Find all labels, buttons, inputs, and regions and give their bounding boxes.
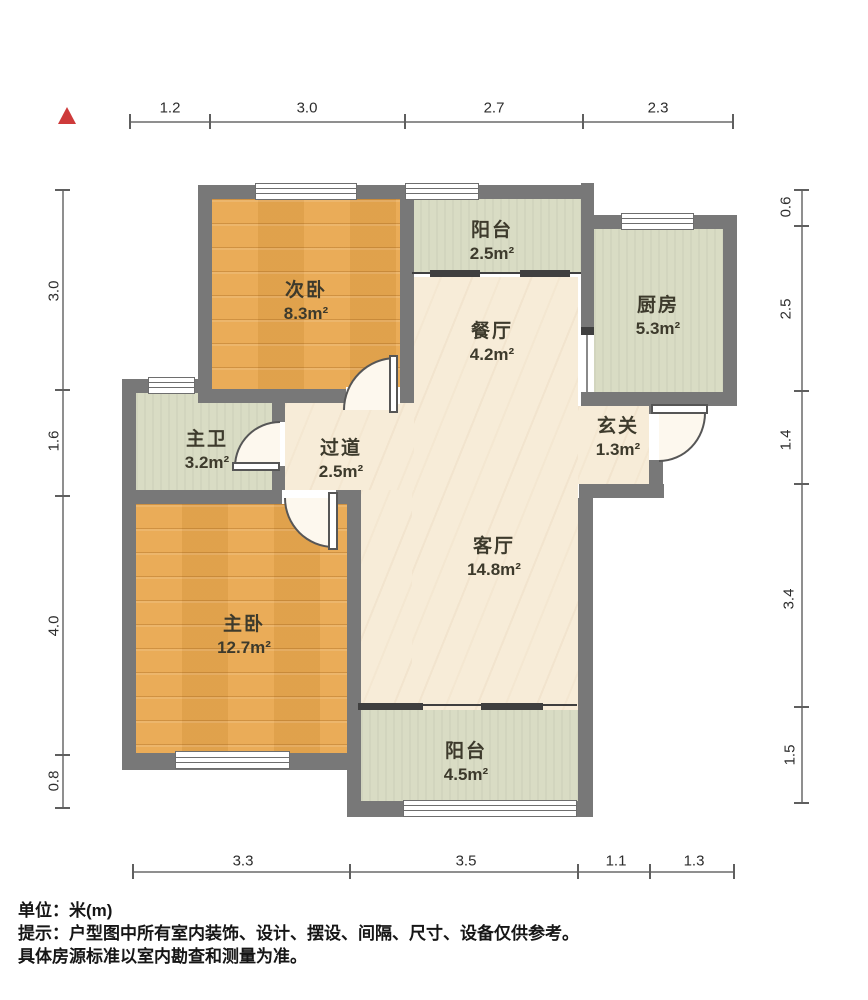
window bbox=[403, 800, 577, 817]
dim-label: 1.2 bbox=[160, 100, 181, 117]
room-name: 餐厅 bbox=[470, 316, 514, 343]
room-area: 3.2m² bbox=[185, 453, 229, 473]
dimension-line-bottom bbox=[133, 871, 735, 873]
dim-tick bbox=[794, 225, 809, 227]
room-living-floor-west bbox=[361, 490, 412, 710]
room-area: 2.5m² bbox=[470, 244, 514, 264]
dim-label: 0.6 bbox=[778, 197, 795, 218]
room-label-kitchen: 厨房 5.3m² bbox=[636, 290, 680, 339]
room-name: 客厅 bbox=[467, 531, 521, 558]
dim-tick bbox=[582, 114, 584, 129]
wall bbox=[723, 215, 737, 406]
wall bbox=[272, 392, 285, 422]
dim-label: 4.0 bbox=[46, 616, 63, 637]
window bbox=[621, 213, 694, 230]
dim-tick bbox=[55, 754, 70, 756]
floor-plan-canvas: 次卧 8.3m² 阳台 2.5m² 厨房 5.3m² 餐厅 4.2m² 主卫 3… bbox=[0, 0, 868, 1000]
room-label-bedroom-second: 次卧 8.3m² bbox=[284, 275, 328, 324]
door-leaf bbox=[232, 462, 280, 471]
footer-notes: 单位：米(m) 提示：户型图中所有室内装饰、设计、摆设、间隔、尺寸、设备仅供参考… bbox=[18, 899, 579, 968]
north-arrow-icon bbox=[58, 107, 76, 124]
dim-tick bbox=[132, 864, 134, 879]
room-name: 阳台 bbox=[470, 215, 514, 242]
door-arc bbox=[659, 413, 706, 462]
door-leaf bbox=[651, 404, 708, 414]
room-name: 主卫 bbox=[185, 424, 229, 451]
dim-label: 0.8 bbox=[46, 771, 63, 792]
dim-label: 3.0 bbox=[297, 100, 318, 117]
dim-tick bbox=[55, 389, 70, 391]
room-name: 过道 bbox=[319, 433, 363, 460]
dimension-line-right bbox=[801, 190, 803, 804]
room-area: 1.3m² bbox=[596, 440, 640, 460]
door-leaf bbox=[389, 355, 398, 413]
sliding-door-panel bbox=[520, 270, 570, 277]
dim-tick bbox=[55, 189, 70, 191]
room-label-balcony-north: 阳台 2.5m² bbox=[470, 215, 514, 264]
room-label-living: 客厅 14.8m² bbox=[467, 531, 521, 580]
wall bbox=[578, 498, 593, 817]
dim-tick bbox=[794, 802, 809, 804]
room-area: 2.5m² bbox=[319, 462, 363, 482]
room-area: 5.3m² bbox=[636, 319, 680, 339]
room-name: 主卧 bbox=[217, 609, 271, 636]
wall bbox=[581, 183, 594, 335]
dim-label: 1.3 bbox=[684, 853, 705, 870]
room-area: 8.3m² bbox=[284, 304, 328, 324]
dim-label: 3.4 bbox=[781, 589, 798, 610]
unit-note: 单位：米(m) bbox=[18, 899, 579, 922]
dim-tick bbox=[794, 706, 809, 708]
room-label-dining: 餐厅 4.2m² bbox=[470, 316, 514, 365]
dim-label: 1.5 bbox=[782, 745, 799, 766]
door-frame bbox=[586, 335, 588, 392]
wall bbox=[122, 490, 282, 504]
wall bbox=[198, 185, 212, 395]
window bbox=[405, 183, 479, 200]
room-name: 次卧 bbox=[284, 275, 328, 302]
room-label-foyer: 玄关 1.3m² bbox=[596, 411, 640, 460]
dim-label: 3.0 bbox=[46, 281, 63, 302]
sliding-door-panel bbox=[481, 703, 543, 710]
window bbox=[175, 751, 290, 769]
door-jamb bbox=[581, 327, 594, 335]
room-area: 4.2m² bbox=[470, 345, 514, 365]
disclaimer-line-2: 具体房源标准以室内勘查和测量为准。 bbox=[18, 945, 579, 968]
dim-label: 3.5 bbox=[456, 853, 477, 870]
dim-label: 3.3 bbox=[233, 853, 254, 870]
room-name: 阳台 bbox=[444, 736, 488, 763]
dim-tick bbox=[794, 390, 809, 392]
window bbox=[148, 377, 195, 394]
disclaimer-line-1: 提示：户型图中所有室内装饰、设计、摆设、间隔、尺寸、设备仅供参考。 bbox=[18, 922, 579, 945]
window bbox=[255, 183, 357, 200]
dim-tick bbox=[209, 114, 211, 129]
room-area: 4.5m² bbox=[444, 765, 488, 785]
dim-tick bbox=[794, 483, 809, 485]
dim-tick bbox=[577, 864, 579, 879]
dim-label: 2.5 bbox=[778, 299, 795, 320]
dim-tick bbox=[55, 495, 70, 497]
dim-tick bbox=[794, 189, 809, 191]
wall bbox=[579, 484, 664, 498]
sliding-door-panel bbox=[430, 270, 480, 277]
room-area: 14.8m² bbox=[467, 560, 521, 580]
dim-label: 1.1 bbox=[606, 853, 627, 870]
wall bbox=[400, 185, 414, 403]
dimension-line-top bbox=[130, 121, 734, 123]
sliding-door-panel bbox=[358, 703, 423, 710]
dim-label: 2.7 bbox=[484, 100, 505, 117]
room-label-balcony-south: 阳台 4.5m² bbox=[444, 736, 488, 785]
room-area: 12.7m² bbox=[217, 638, 271, 658]
dim-tick bbox=[404, 114, 406, 129]
room-label-bedroom-master: 主卧 12.7m² bbox=[217, 609, 271, 658]
room-name: 玄关 bbox=[596, 411, 640, 438]
door-leaf bbox=[328, 492, 338, 550]
room-label-hallway: 过道 2.5m² bbox=[319, 433, 363, 482]
room-name: 厨房 bbox=[636, 290, 680, 317]
wall bbox=[122, 379, 136, 770]
room-label-bath-master: 主卫 3.2m² bbox=[185, 424, 229, 473]
dim-label: 1.6 bbox=[46, 431, 63, 452]
dim-tick bbox=[649, 864, 651, 879]
dim-tick bbox=[733, 864, 735, 879]
dim-tick bbox=[55, 807, 70, 809]
dim-label: 2.3 bbox=[648, 100, 669, 117]
dim-label: 1.4 bbox=[778, 430, 795, 451]
dim-tick bbox=[732, 114, 734, 129]
dim-tick bbox=[349, 864, 351, 879]
dim-tick bbox=[129, 114, 131, 129]
